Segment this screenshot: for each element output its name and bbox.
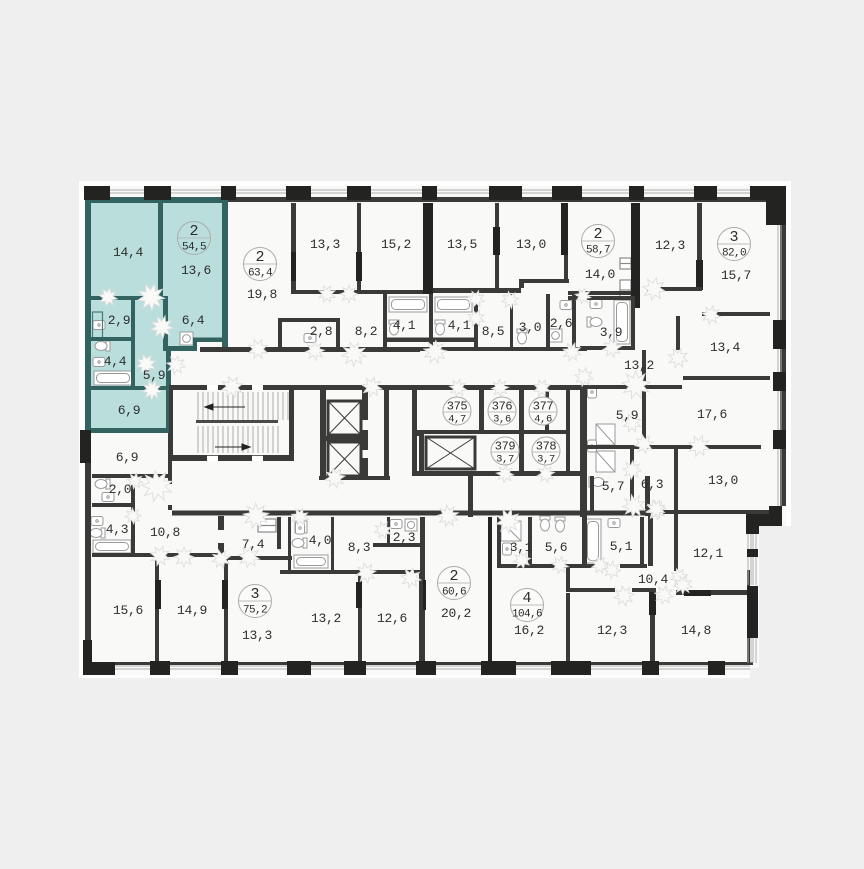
svg-text:2,0: 2,0	[109, 482, 132, 497]
svg-text:3,6: 3,6	[493, 414, 511, 426]
svg-text:14,0: 14,0	[585, 267, 615, 282]
svg-text:15,2: 15,2	[381, 237, 411, 252]
svg-text:8,3: 8,3	[348, 540, 371, 555]
svg-text:4,0: 4,0	[309, 533, 332, 548]
svg-text:16,2: 16,2	[514, 623, 544, 638]
svg-text:5,1: 5,1	[610, 539, 633, 554]
svg-text:6,3: 6,3	[641, 477, 664, 492]
svg-text:12,3: 12,3	[597, 623, 627, 638]
svg-text:4,7: 4,7	[448, 414, 466, 426]
svg-text:13,4: 13,4	[710, 340, 741, 355]
svg-text:6,4: 6,4	[182, 313, 205, 328]
svg-text:2,6: 2,6	[550, 316, 573, 331]
svg-text:12,6: 12,6	[377, 611, 407, 626]
svg-text:20,2: 20,2	[441, 606, 471, 621]
svg-text:13,2: 13,2	[624, 358, 654, 373]
svg-text:75,2: 75,2	[243, 605, 267, 617]
svg-text:4,6: 4,6	[534, 414, 552, 426]
svg-text:3,0: 3,0	[519, 320, 542, 335]
svg-text:3: 3	[250, 586, 259, 603]
svg-text:13,5: 13,5	[447, 237, 477, 252]
svg-text:378: 378	[536, 440, 557, 454]
svg-text:2: 2	[593, 226, 602, 243]
svg-text:14,8: 14,8	[681, 623, 711, 638]
svg-text:82,0: 82,0	[722, 248, 746, 260]
svg-text:12,1: 12,1	[693, 546, 724, 561]
svg-text:5,7: 5,7	[602, 479, 625, 494]
svg-text:8,5: 8,5	[482, 324, 505, 339]
svg-text:19,8: 19,8	[247, 287, 277, 302]
svg-text:13,3: 13,3	[242, 628, 272, 643]
svg-text:7,4: 7,4	[242, 537, 265, 552]
svg-text:3,9: 3,9	[600, 325, 623, 340]
svg-text:13,6: 13,6	[181, 263, 211, 278]
svg-text:17,6: 17,6	[697, 407, 727, 422]
svg-text:5,9: 5,9	[616, 408, 639, 423]
svg-text:3,7: 3,7	[537, 454, 555, 466]
svg-text:4,3: 4,3	[106, 522, 129, 537]
svg-text:13,0: 13,0	[516, 237, 546, 252]
svg-text:60,6: 60,6	[442, 587, 466, 599]
svg-text:54,5: 54,5	[182, 242, 206, 254]
svg-text:10,4: 10,4	[638, 572, 669, 587]
svg-text:63,4: 63,4	[248, 268, 273, 280]
svg-text:14,4: 14,4	[113, 245, 144, 260]
svg-text:15,7: 15,7	[721, 268, 751, 283]
svg-text:2: 2	[189, 223, 198, 240]
svg-text:6,9: 6,9	[116, 450, 139, 465]
svg-text:375: 375	[447, 400, 468, 414]
svg-text:2,9: 2,9	[108, 313, 131, 328]
svg-text:3,7: 3,7	[496, 454, 514, 466]
svg-text:10,8: 10,8	[150, 525, 180, 540]
svg-text:14,9: 14,9	[177, 603, 207, 618]
svg-text:58,7: 58,7	[586, 245, 610, 257]
svg-text:2,8: 2,8	[310, 324, 333, 339]
svg-text:4,1: 4,1	[393, 318, 416, 333]
svg-text:2,3: 2,3	[393, 530, 416, 545]
svg-text:13,2: 13,2	[311, 611, 341, 626]
svg-text:5,6: 5,6	[545, 540, 568, 555]
svg-text:2: 2	[449, 568, 458, 585]
svg-text:4,4: 4,4	[104, 354, 127, 369]
svg-text:379: 379	[495, 440, 516, 454]
svg-text:3,1: 3,1	[510, 540, 533, 555]
svg-text:8,2: 8,2	[355, 324, 378, 339]
svg-text:12,3: 12,3	[655, 238, 685, 253]
svg-text:4: 4	[522, 590, 531, 607]
svg-text:2: 2	[255, 249, 264, 266]
svg-text:377: 377	[533, 400, 554, 414]
svg-text:6,9: 6,9	[118, 403, 141, 418]
svg-text:3: 3	[729, 229, 738, 246]
svg-text:376: 376	[492, 400, 513, 414]
svg-text:13,3: 13,3	[310, 237, 340, 252]
svg-text:5,9: 5,9	[143, 368, 166, 383]
svg-text:15,6: 15,6	[113, 603, 143, 618]
svg-text:4,1: 4,1	[448, 318, 471, 333]
svg-text:13,0: 13,0	[708, 473, 738, 488]
svg-text:104,6: 104,6	[512, 609, 542, 621]
